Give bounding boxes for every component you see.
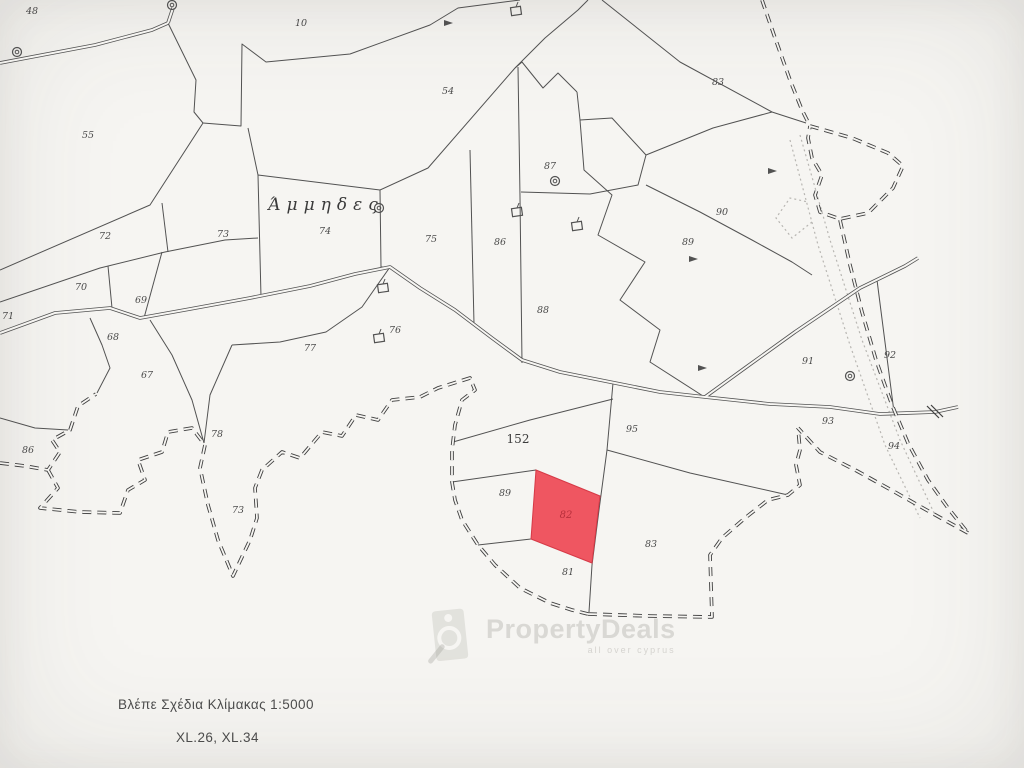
parcel-boundary-line <box>203 0 520 126</box>
parcel-label: 81 <box>562 567 574 578</box>
parcel-label: 94 <box>888 441 900 452</box>
parcel-label: 10 <box>295 18 307 29</box>
survey-boundary-line <box>0 394 96 470</box>
parcel-boundary-line <box>515 0 588 68</box>
parcel-label: 90 <box>716 207 728 218</box>
road-line <box>0 267 958 414</box>
parcel-label: 68 <box>107 332 119 343</box>
well-icon <box>13 48 22 57</box>
parcel-boundary-line <box>607 450 788 495</box>
parcel-label: 76 <box>389 325 401 336</box>
sheet-reference-note: XL.26, XL.34 <box>176 730 259 745</box>
parcel-boundary-line <box>248 128 261 297</box>
parcel-boundary-line <box>602 0 772 112</box>
building-icon <box>511 207 522 216</box>
parcel-label: 55 <box>82 130 94 141</box>
parcel-boundary-line <box>515 62 577 92</box>
well-icon-inner <box>15 50 19 54</box>
parcel-boundary-line <box>90 318 110 393</box>
parcel-boundary-line <box>0 238 258 302</box>
well-icon-inner <box>848 374 852 378</box>
survey-boundary-core <box>808 126 903 219</box>
parcel-boundary-line <box>580 120 703 396</box>
well-icon-inner <box>170 3 174 7</box>
highlighted-parcel-number: 82 <box>560 510 573 521</box>
parcel-boundary-line <box>877 280 894 412</box>
survey-boundary-line <box>588 428 800 617</box>
survey-boundary-core <box>588 428 800 617</box>
parcel-label: 77 <box>304 343 317 354</box>
parcel-label: 83 <box>712 77 724 88</box>
survey-boundary-core <box>762 0 810 126</box>
road-line-core <box>0 267 958 414</box>
place-name-label: Άμμηδες <box>266 195 383 215</box>
parcel-boundary-line <box>478 539 531 545</box>
parcel-label: 83 <box>645 539 657 550</box>
parcel-label: 75 <box>425 234 437 245</box>
parcel-label-152: 152 <box>507 432 530 446</box>
parcel-boundary-line <box>0 123 203 270</box>
parcel-label: 54 <box>442 86 454 97</box>
parcel-boundary-line <box>0 418 68 430</box>
parcel-label: 72 <box>99 231 111 242</box>
parcel-label: 86 <box>494 237 506 248</box>
direction-arrow <box>768 168 777 174</box>
parcel-label: 92 <box>884 350 896 361</box>
dotted-track-line <box>790 140 920 518</box>
parcel-boundary-line <box>452 470 536 482</box>
building-icon <box>571 221 582 230</box>
survey-boundary-core <box>0 394 96 470</box>
parcel-boundary-line <box>470 150 474 324</box>
parcel-label: 86 <box>22 445 34 456</box>
parcel-label: 89 <box>499 488 511 499</box>
road-line-core <box>705 258 918 397</box>
parcel-label: 87 <box>544 161 557 172</box>
parcel-boundary-line <box>453 399 613 442</box>
well-icon <box>551 177 560 186</box>
direction-arrow <box>689 256 698 262</box>
cadastral-map-page: 8248105554838790897273747586887069716867… <box>0 0 1024 768</box>
direction-arrow <box>444 20 453 26</box>
parcel-label: 91 <box>802 356 814 367</box>
parcel-label: 74 <box>319 226 331 237</box>
direction-arrow <box>698 365 707 371</box>
building-icon <box>373 333 384 342</box>
parcel-boundary-line <box>232 267 390 345</box>
parcel-label: 67 <box>141 370 154 381</box>
road-line <box>705 258 918 397</box>
parcel-boundary-line <box>646 185 812 275</box>
parcel-label: 48 <box>25 6 38 17</box>
parcel-boundary-line <box>168 23 203 123</box>
parcel-label: 69 <box>135 295 147 306</box>
parcel-boundary-line <box>521 92 646 194</box>
survey-boundary-core <box>798 428 968 533</box>
parcel-boundary-line <box>108 266 112 308</box>
well-icon <box>846 372 855 381</box>
parcel-label: 71 <box>2 311 14 322</box>
road-line <box>0 23 168 63</box>
building-icon <box>377 283 388 292</box>
parcel-boundary-line <box>144 252 162 318</box>
parcel-boundary-line <box>150 320 204 443</box>
scale-note: Βλέπε Σχέδια Κλίμακας 1:5000 <box>118 697 314 712</box>
parcel-label: 93 <box>822 416 834 427</box>
parcel-boundary-line <box>646 112 806 155</box>
parcel-label: 70 <box>75 282 87 293</box>
parcel-label: 89 <box>682 237 694 248</box>
parcel-boundary-line <box>162 203 168 252</box>
parcel-boundary-line <box>258 175 380 190</box>
building-icon <box>510 6 521 15</box>
parcel-label: 73 <box>217 229 229 240</box>
parcel-label: 78 <box>211 429 223 440</box>
well-icon-inner <box>553 179 557 183</box>
parcel-label: 88 <box>537 305 549 316</box>
parcel-label: 73 <box>232 505 244 516</box>
parcel-label: 95 <box>626 424 638 435</box>
cadastral-map: 8248105554838790897273747586887069716867… <box>0 0 1024 768</box>
survey-boundary-line <box>798 428 968 533</box>
